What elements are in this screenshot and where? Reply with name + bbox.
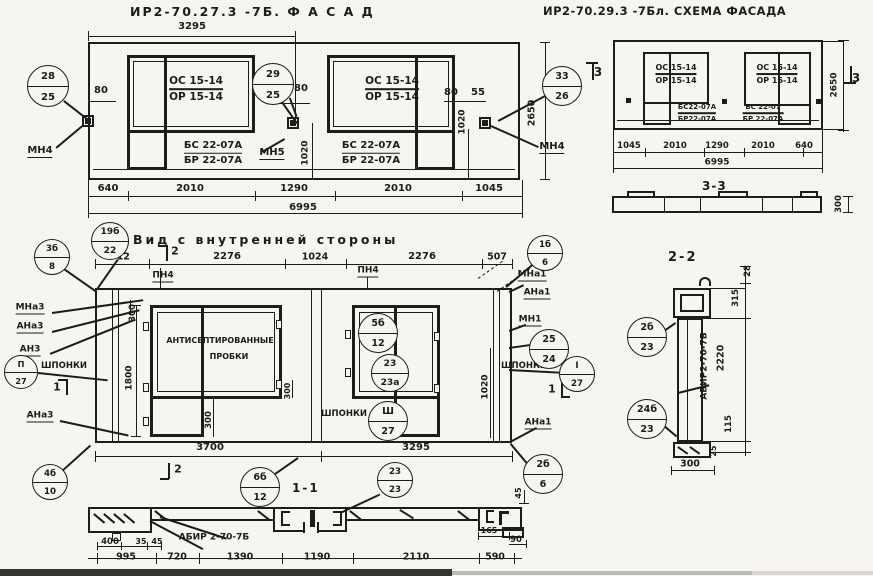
dim-label: 720 [167,552,187,562]
mark-top: ОС 15-14 [169,75,223,87]
dim-label: 6995 [704,159,729,168]
dim-label: 1020 [482,374,491,399]
dim-label: 28 [744,265,753,277]
block-mark: БС22-07АБР22-07А [678,103,716,123]
callout-top: 1б [528,236,562,254]
callout-bottom: 27 [560,375,594,392]
callout-bottom: 25 [28,87,68,107]
dim-label: 2010 [663,142,687,151]
mark-top: БС 22-07 [743,103,784,111]
callout-top: 28 [28,66,68,87]
callout-circle: 6б12 [240,467,280,507]
window-mark: ОС 15-14ОР 15-14 [756,63,797,85]
callout-bottom: 8 [35,258,69,275]
dim-label: 80 [94,86,108,96]
callout-top: 4б [33,465,67,483]
dim-label: 507 [487,252,507,262]
callout-bottom: 27 [369,422,407,441]
callout-top: 24б [628,400,666,420]
callout-bottom: 25 [253,85,293,105]
section-marker-1: 1 [548,384,556,395]
callout-circle: П27 [4,355,38,389]
dim-label: 1024 [302,252,328,262]
callout-circle: 2323а [371,354,409,392]
dim-label: 2220 [716,345,726,371]
section-marker-1: 1 [53,382,61,393]
dim-label: 3295 [178,22,206,32]
block-mark: БС 22-07БР 22-07А [743,103,784,123]
fraction-bar [184,152,242,154]
anchor-label-mn4-right: МН4 [539,142,564,154]
block-mark: БС 22-07АБР 22-07А [342,140,400,167]
mark-bottom: ОР 15-14 [756,76,797,85]
dim-label: 2276 [408,252,436,262]
callout-bottom: 23а [372,374,408,392]
dim-label: 2276 [213,252,241,262]
callout-bottom: 12 [359,334,397,353]
dim-label: 35 [135,538,146,546]
section-marker-2: 2 [171,246,179,257]
fraction-bar [743,112,784,114]
mark-bottom: БР 22-07А [342,155,400,167]
section-marker-2: 2 [174,464,182,475]
callout-circle: I27 [559,356,595,392]
callout-bottom: 23 [628,338,666,357]
callout-bottom: 22 [92,242,128,260]
callout-circle: 3б8 [34,239,70,275]
dim-label: 1800 [126,365,135,390]
dim-label: 90 [510,536,522,545]
dim-label: 45 [515,487,523,498]
callout-circle: 2323 [377,462,413,498]
dim-label: 3295 [402,443,430,453]
dim-label: 2010 [384,184,412,194]
anchor-label-mn4-left: МН4 [27,146,52,158]
window-mark: ОС 15-14ОР 15-14 [365,75,419,103]
keys-label: ШПОНКИ [321,410,367,419]
mark-bottom: БР22-07А [678,115,716,123]
window-mark: ОС 15-14ОР 15-14 [169,75,223,103]
dim-label: 1390 [227,552,253,562]
callout-circle: 5б12 [358,313,398,353]
dim-label: 2650 [527,100,537,126]
dim-label: 300 [205,411,214,429]
dim-label: 1045 [475,184,503,194]
keys-label: ШПОНКИ [41,362,87,371]
dim-label: МН1 [519,316,542,327]
dim-label: 300 [835,195,844,213]
callout-circle: 2825 [27,65,69,107]
mark-bottom: ОР 15-14 [169,91,223,103]
dim-label: 300 [680,459,700,469]
dim-label: 2010 [751,142,775,151]
callout-bottom: 23 [628,420,666,439]
callout-bottom: 6 [524,475,562,494]
dim-label: 2650 [831,72,840,97]
mark-top: ОС 15-14 [655,63,696,72]
mark-top: БС 22-07А [184,140,242,152]
callout-circle: 2925 [252,63,294,105]
dim-label: 1020 [302,140,311,165]
dim-label: 165 [481,527,498,535]
panel-mark-label: АБИР2-70-7Б [701,332,710,399]
fraction-bar [342,152,400,154]
mark-bottom: БР 22-07А [743,115,784,123]
callout-top: Ш [369,402,407,422]
callout-top: 19б [92,223,128,242]
dim-label: 315 [732,289,741,307]
dim-label: 1045 [617,142,641,151]
window-mark: ОС 15-14ОР 15-14 [655,63,696,85]
dim-label: 300 [284,383,292,400]
callout-top: 23 [378,463,412,481]
mark-bottom: ОР 15-14 [365,91,419,103]
dim-label: АНа1 [524,289,551,300]
callout-bottom: 10 [33,483,67,500]
callout-top: 33 [543,67,581,87]
callout-bottom: 12 [241,488,279,507]
dim-label: 400 [101,538,119,547]
dim-label: 80 [294,84,308,94]
mark-top: ОС 15-14 [756,63,797,72]
callout-bottom: 23 [378,481,412,498]
joint-label-pn4: ПН4 [357,267,378,278]
callout-circle: 2б6 [523,454,563,494]
dim-label: 2110 [403,552,429,562]
note-antiseptic-line1: АНТИСЕПТИРОВАННЫЕ [166,337,273,345]
dim-label: АНа3 [27,412,54,423]
dim-label: 590 [485,552,505,562]
callout-circle: 2б23 [627,317,667,357]
callout-top: 2б [628,318,666,338]
fraction-bar [678,112,716,114]
callout-top: 2б [524,455,562,475]
dim-label: МНа3 [16,304,45,315]
dim-label: 45 [151,538,162,546]
fraction-bar [756,73,797,75]
callout-top: 23 [372,355,408,374]
dim-label: МНа1 [518,271,547,282]
labels-layer: 3295805808055102010202650МН4МН5МН4640201… [0,0,873,576]
callout-bottom: 27 [5,373,37,389]
dim-label: 1020 [459,109,468,134]
mark-bottom: ОР 15-14 [655,76,696,85]
mark-top: БС 22-07А [342,140,400,152]
fraction-bar [365,88,419,90]
section-marker-3: 3 [852,72,860,84]
dim-label: 1290 [705,142,729,151]
dim-label: 2010 [176,184,204,194]
dim-label: 80 [444,88,458,98]
callout-top: 25 [530,330,568,350]
callout-bottom: 6 [528,254,562,271]
anchor-label-mn5: МН5 [259,148,284,160]
dim-label: 25 [710,445,718,456]
callout-circle: 4б10 [32,464,68,500]
fraction-bar [169,88,223,90]
dim-label: 3700 [196,443,224,453]
callout-circle: 24б23 [627,399,667,439]
callout-bottom: 26 [543,87,581,106]
dim-label: 1290 [280,184,308,194]
callout-circle: 3326 [542,66,582,106]
joint-label-pn4: ПН4 [152,272,173,283]
dim-label: 995 [116,552,136,562]
callout-circle: 1б6 [527,235,563,271]
block-mark: БС 22-07АБР 22-07А [184,140,242,167]
dim-label: 55 [471,88,485,98]
dim-label: АНа1 [525,419,552,430]
mark-top: БС22-07А [678,103,716,111]
callout-top: 3б [35,240,69,258]
dim-label: 115 [725,415,734,433]
callout-top: 29 [253,64,293,85]
dim-label: 640 [98,184,119,194]
dim-label: 640 [795,142,813,151]
callout-top: 5б [359,314,397,334]
note-antiseptic-line2: ПРОБКИ [210,353,249,361]
callout-top: I [560,357,594,375]
dim-label: 1190 [304,552,330,562]
dim-label: АНа3 [17,323,44,334]
dim-label: 300 [129,304,138,322]
panel-mark-label: АБИР 2-70-7Б [179,534,249,543]
dim-label: 6995 [289,203,317,213]
mark-top: ОС 15-14 [365,75,419,87]
section-marker-3: 3 [594,66,602,78]
callout-top: 6б [241,468,279,488]
fraction-bar [655,73,696,75]
callout-top: П [5,356,37,373]
mark-bottom: БР 22-07А [184,155,242,167]
callout-circle: 19б22 [91,222,129,260]
blueprint-page: ИР2-70.27.3 -7Б. Ф А С А Д ИР2-70.29.3 -… [0,0,873,576]
callout-circle: Ш27 [368,401,408,441]
